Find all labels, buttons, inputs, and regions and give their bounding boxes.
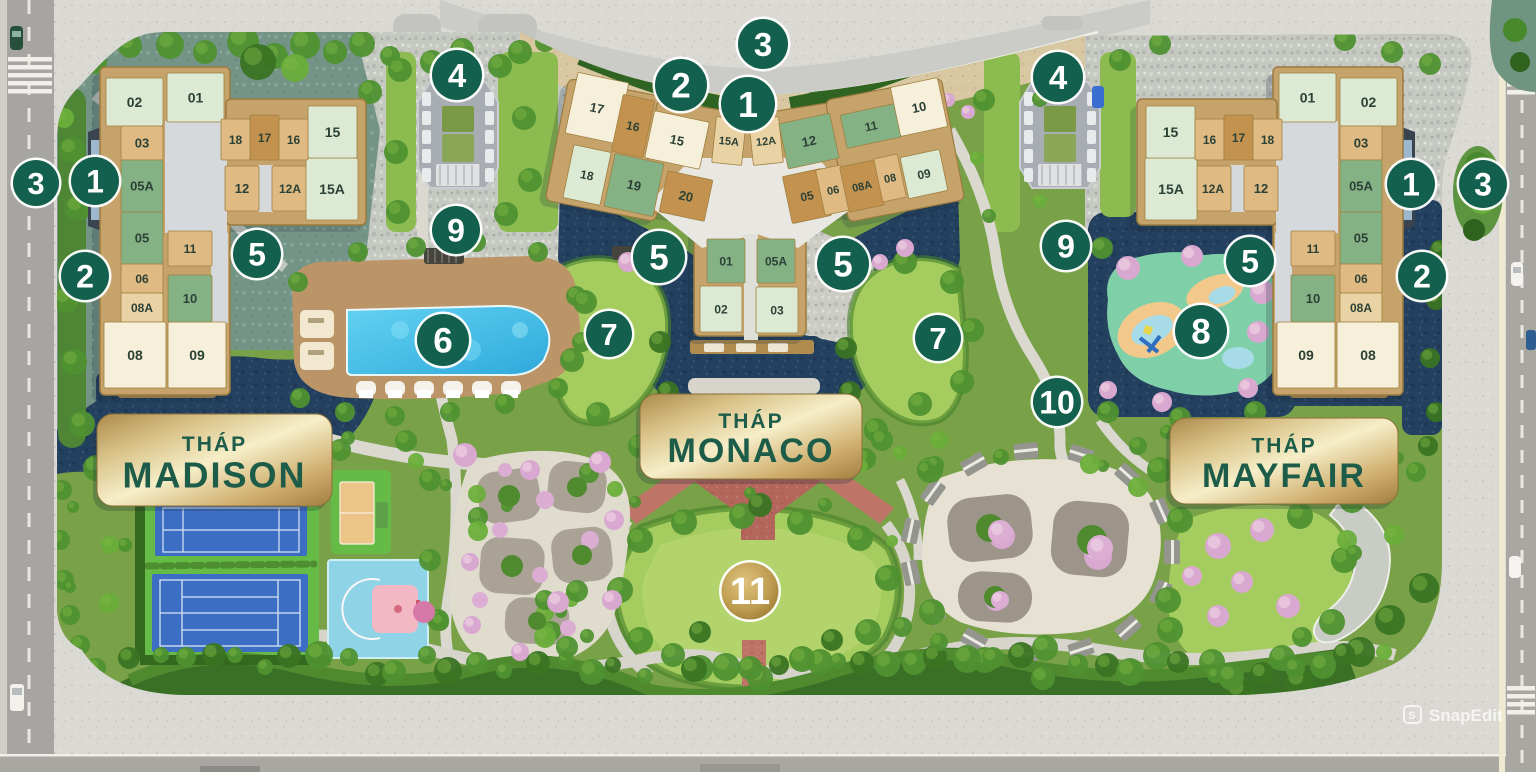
svg-text:THÁP: THÁP xyxy=(718,410,783,433)
svg-text:9: 9 xyxy=(1057,229,1075,265)
svg-text:15A: 15A xyxy=(319,181,345,197)
svg-text:15A: 15A xyxy=(718,135,739,149)
svg-text:7: 7 xyxy=(600,317,617,352)
svg-text:09: 09 xyxy=(1298,347,1314,363)
svg-text:12A: 12A xyxy=(279,182,301,196)
svg-text:MAYFAIR: MAYFAIR xyxy=(1202,457,1366,495)
svg-text:16: 16 xyxy=(287,133,301,147)
svg-text:08A: 08A xyxy=(1350,301,1372,315)
svg-text:08: 08 xyxy=(127,347,143,363)
svg-text:9: 9 xyxy=(447,213,465,249)
svg-text:01: 01 xyxy=(1300,90,1316,106)
svg-text:7: 7 xyxy=(929,321,946,356)
svg-text:4: 4 xyxy=(1049,59,1068,96)
svg-text:08: 08 xyxy=(1360,347,1376,363)
svg-text:15A: 15A xyxy=(1158,181,1184,197)
svg-text:10: 10 xyxy=(910,98,927,116)
svg-text:12: 12 xyxy=(800,132,817,150)
svg-text:S: S xyxy=(1408,710,1415,722)
svg-text:08A: 08A xyxy=(131,301,153,315)
svg-text:17: 17 xyxy=(1232,131,1246,145)
svg-text:02: 02 xyxy=(714,302,728,316)
svg-text:02: 02 xyxy=(1361,94,1377,110)
svg-text:15: 15 xyxy=(668,131,685,149)
svg-text:03: 03 xyxy=(770,303,784,317)
svg-text:2: 2 xyxy=(671,66,690,105)
svg-text:12: 12 xyxy=(1254,181,1268,196)
svg-text:03: 03 xyxy=(1354,136,1368,151)
svg-text:18: 18 xyxy=(1261,133,1275,147)
svg-text:3: 3 xyxy=(1474,167,1492,203)
svg-text:19: 19 xyxy=(625,176,642,194)
svg-text:06: 06 xyxy=(826,184,840,198)
svg-text:15: 15 xyxy=(1163,124,1179,140)
svg-text:2: 2 xyxy=(1413,259,1431,295)
svg-text:12A: 12A xyxy=(1202,182,1224,196)
svg-text:10: 10 xyxy=(1306,291,1320,306)
svg-text:16: 16 xyxy=(1203,133,1217,147)
svg-text:11: 11 xyxy=(1307,242,1320,256)
svg-text:08: 08 xyxy=(883,172,897,186)
svg-text:03: 03 xyxy=(135,136,149,151)
svg-text:09: 09 xyxy=(189,347,205,363)
svg-text:10: 10 xyxy=(183,291,197,306)
svg-text:8: 8 xyxy=(1191,312,1210,351)
svg-text:SnapEdit: SnapEdit xyxy=(1429,706,1503,725)
svg-text:2: 2 xyxy=(76,259,94,295)
svg-text:5: 5 xyxy=(649,238,668,277)
svg-text:3: 3 xyxy=(754,26,772,63)
svg-text:12: 12 xyxy=(235,181,249,196)
svg-text:05A: 05A xyxy=(1349,179,1373,194)
svg-text:06: 06 xyxy=(135,272,149,286)
svg-text:05: 05 xyxy=(135,231,149,246)
svg-text:11: 11 xyxy=(730,571,770,613)
svg-text:6: 6 xyxy=(433,321,452,360)
svg-text:17: 17 xyxy=(258,131,272,145)
svg-text:01: 01 xyxy=(188,90,204,106)
svg-text:3: 3 xyxy=(27,166,44,201)
svg-text:10: 10 xyxy=(1039,385,1075,421)
svg-text:05A: 05A xyxy=(765,254,787,268)
svg-text:01: 01 xyxy=(719,254,733,268)
svg-text:11: 11 xyxy=(184,242,197,256)
svg-text:05: 05 xyxy=(1354,231,1368,246)
svg-text:05A: 05A xyxy=(130,179,154,194)
svg-text:1: 1 xyxy=(738,84,758,125)
svg-text:MADISON: MADISON xyxy=(123,455,307,496)
svg-text:06: 06 xyxy=(1354,272,1368,286)
svg-text:4: 4 xyxy=(448,57,467,94)
svg-text:18: 18 xyxy=(229,133,243,147)
svg-text:1: 1 xyxy=(1402,167,1420,203)
svg-text:MONACO: MONACO xyxy=(668,432,835,470)
svg-text:02: 02 xyxy=(127,94,143,110)
svg-text:1: 1 xyxy=(86,164,104,200)
svg-text:THÁP: THÁP xyxy=(182,433,247,456)
svg-text:20: 20 xyxy=(677,187,694,205)
svg-text:12A: 12A xyxy=(755,135,776,149)
svg-text:5: 5 xyxy=(248,237,266,273)
svg-text:17: 17 xyxy=(588,99,605,117)
svg-text:5: 5 xyxy=(833,245,852,284)
svg-text:THÁP: THÁP xyxy=(1251,434,1316,457)
svg-text:5: 5 xyxy=(1241,244,1259,280)
svg-text:15: 15 xyxy=(325,124,341,140)
